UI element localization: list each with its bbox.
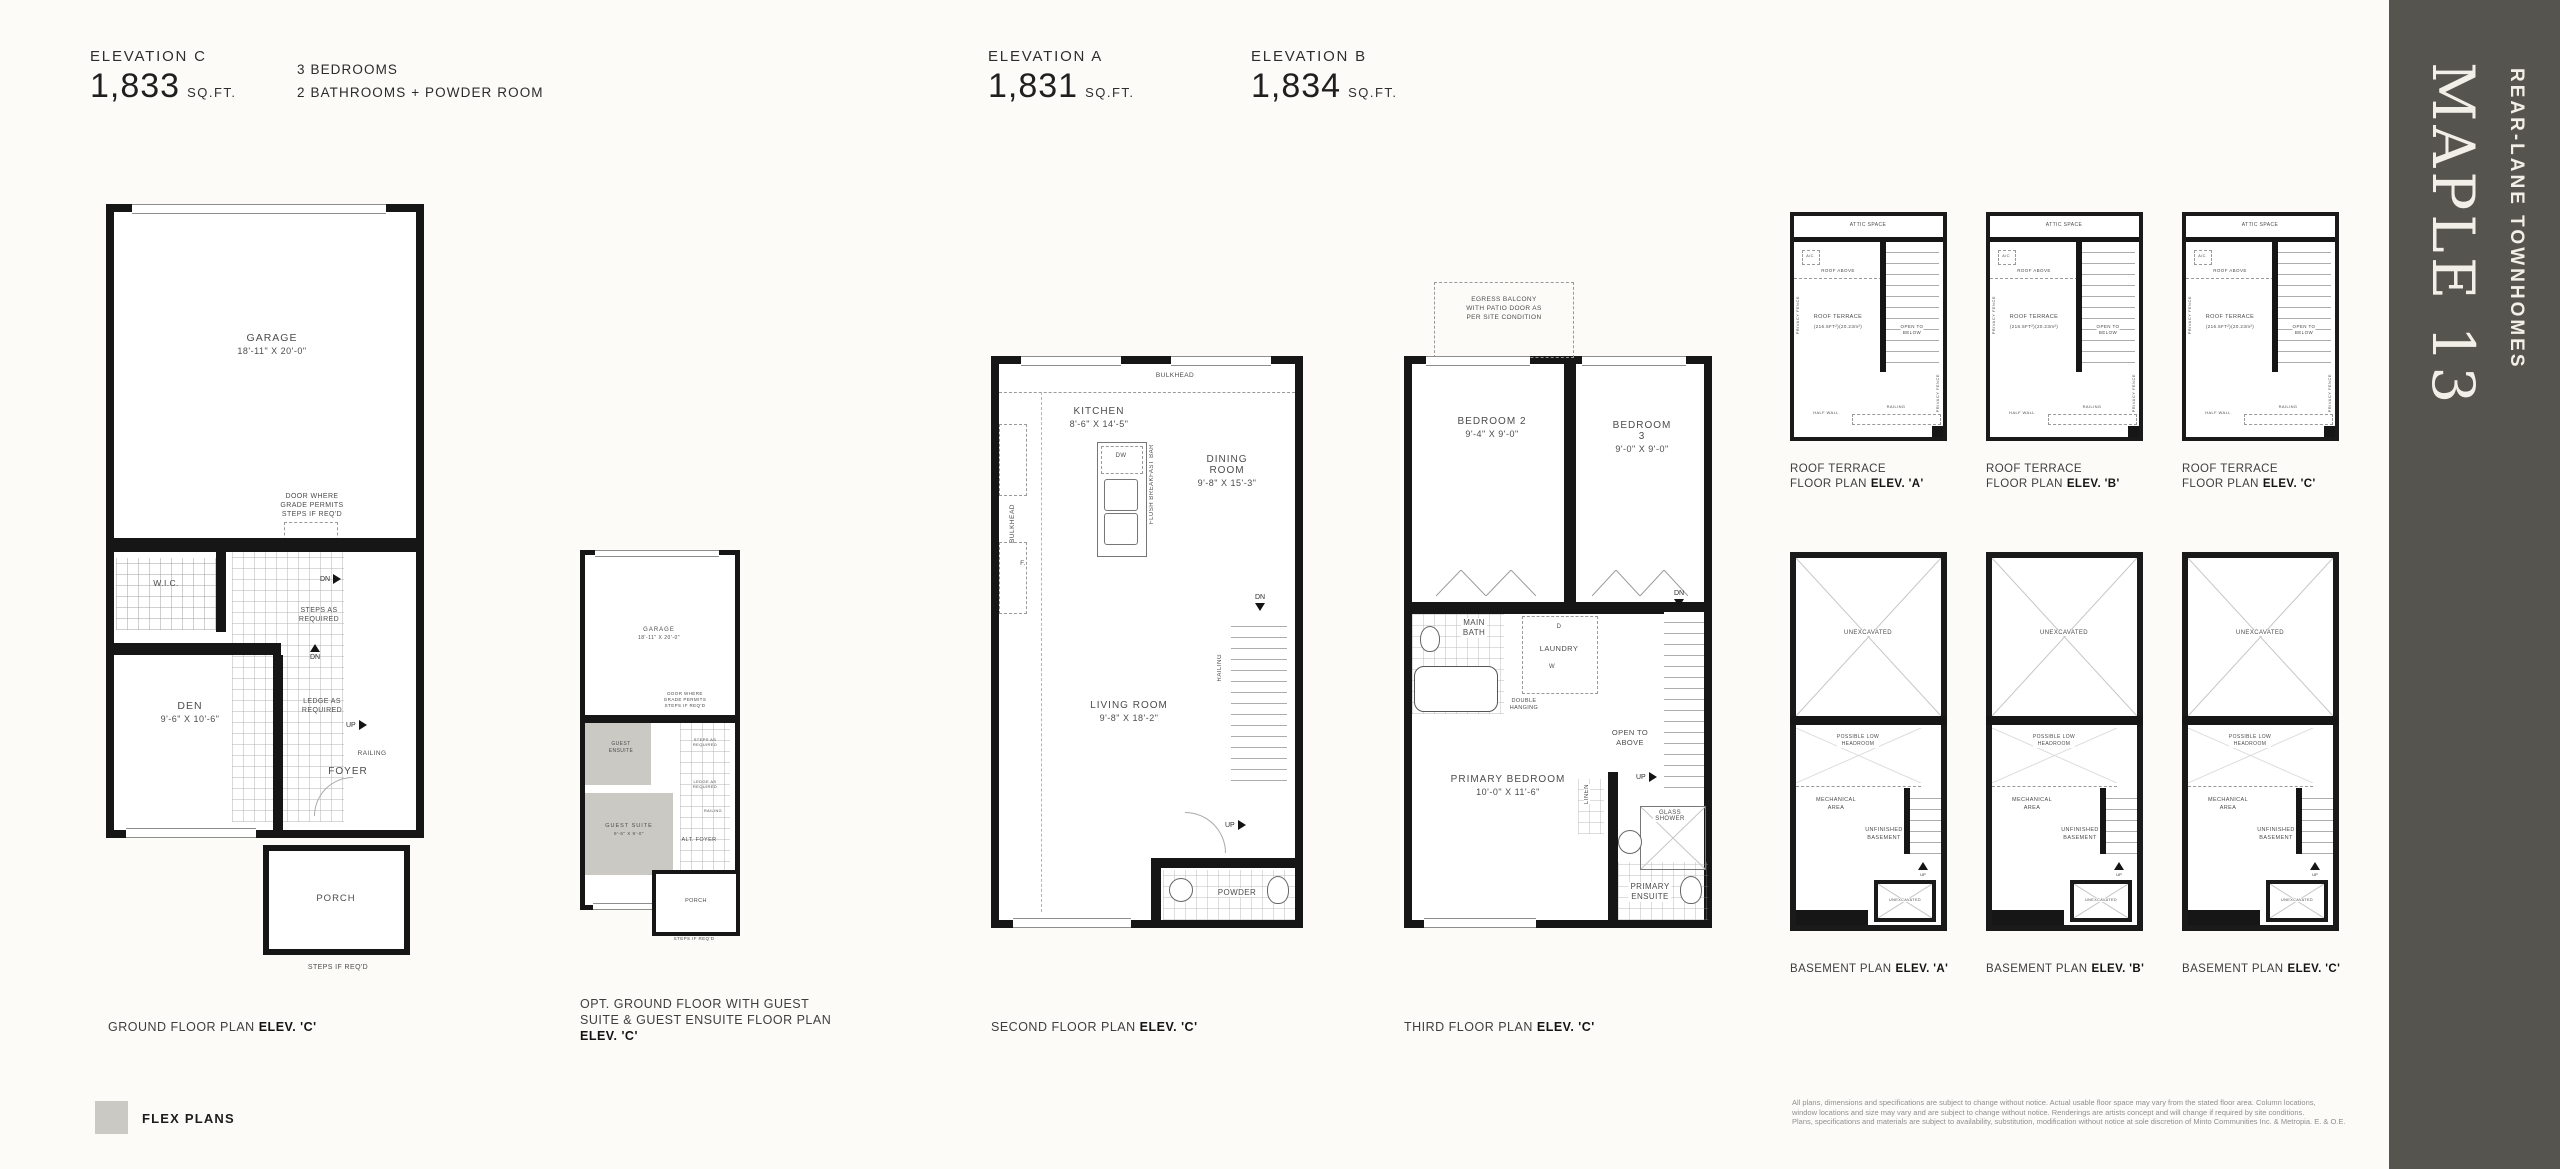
unexcavated-label: UNEXCAVATED (1842, 630, 1894, 636)
guest-suite-label: GUEST SUITE 9'-6" X 9'-0" (605, 823, 653, 836)
roof-terrace-plan-a: ATTIC SPACE A/C ROOF ABOVE ROOF TERRACE … (1790, 212, 1947, 441)
unfinished-label: UNFINISHED BASEMENT (1865, 826, 1903, 842)
privacy-fence-label: PRIVACY FENCE (1991, 296, 1996, 334)
dn-label: DN (1255, 594, 1265, 601)
toilet (1267, 876, 1289, 904)
open-below-label: OPEN TO BELOW (1901, 324, 1924, 336)
sink (1104, 479, 1138, 511)
up-label: UP (1920, 872, 1926, 877)
feature-list: 3 BEDROOMS 2 BATHROOMS + POWDER ROOM (297, 58, 544, 104)
wall (1932, 426, 1943, 437)
room-name: KITCHEN (1070, 406, 1129, 417)
sink (1169, 878, 1193, 902)
caption-text: ROOF TERRACE (1790, 462, 1924, 477)
wall (2182, 716, 2339, 725)
garage-room-label: GARAGE 18'-11" X 20'-0" (638, 627, 680, 641)
stairs (2082, 242, 2135, 372)
elevation-b-area: 1,834SQ.FT. (1251, 67, 1398, 106)
fridge-label: F. (1020, 560, 1026, 567)
egress-note: EGRESS BALCONY WITH PATIO DOOR AS PER SI… (1439, 295, 1569, 322)
porch: PORCH (263, 845, 410, 955)
bedroom3-label: BEDROOM 3 9'-0" X 9'-0" (1611, 420, 1673, 454)
den-room-label: DEN 9'-6" X 10'-6" (161, 700, 220, 724)
open-to-above-label: OPEN TO ABOVE (1612, 728, 1648, 748)
cooktop (999, 424, 1027, 496)
railing (1852, 414, 1941, 425)
opt-plan-caption: OPT. GROUND FLOOR WITH GUEST SUITE & GUE… (580, 996, 831, 1044)
unexcavated-box: UNEXCAVATED (2266, 880, 2328, 922)
unfinished-label: UNFINISHED BASEMENT (2061, 826, 2099, 842)
half-wall-label: HALF WALL (2009, 410, 2035, 415)
railing-label: RAILING (2279, 404, 2298, 409)
attic-label: ATTIC SPACE (1850, 222, 1886, 228)
powder-label: POWDER (1216, 888, 1258, 897)
line (2188, 786, 2313, 787)
railing (2244, 414, 2333, 425)
unexcavated-label: UNEXCAVATED (1889, 898, 1921, 902)
room-dim: 9'-8" X 15'-3" (1193, 478, 1261, 488)
ground-floor-plan: GARAGE 18'-11" X 20'-0" DOOR WHERE GRADE… (106, 204, 424, 838)
porch-label: PORCH (316, 893, 355, 904)
door-swing-arc (1185, 812, 1226, 853)
caption-elev: ELEV. 'C' (259, 1020, 317, 1034)
unexcavated-label: UNEXCAVATED (2281, 898, 2313, 902)
mechanical-label: MECHANICAL AREA (2208, 796, 2248, 812)
bulkhead-label: BULKHEAD (1156, 372, 1194, 379)
caption-text: SECOND FLOOR PLAN (991, 1020, 1136, 1034)
attic-label: ATTIC SPACE (2046, 222, 2082, 228)
up-direction: UP (2310, 862, 2320, 877)
opt-ground-floor-plan: GARAGE 18'-11" X 20'-0" DOOR WHERE GRADE… (580, 550, 740, 910)
caption-elev: ELEV. 'A' (1871, 478, 1924, 490)
dn-direction: DN (1674, 590, 1684, 607)
roof-above-label: ROOF ABOVE (2017, 268, 2051, 273)
basement-caption-a: BASEMENT PLANELEV. 'A' (1790, 962, 1948, 977)
privacy-fence-label: PRIVACY FENCE (2131, 374, 2136, 412)
bathtub (1414, 666, 1498, 712)
ac-label: A/C (2198, 253, 2206, 258)
second-plan-caption: SECOND FLOOR PLANELEV. 'C' (991, 1020, 1198, 1034)
linen-closet (1578, 779, 1604, 834)
dryer-label: D (1557, 624, 1562, 630)
caption-text: ROOF TERRACE (1986, 462, 2120, 477)
line (1796, 786, 1921, 787)
room-dim: 18'-11" X 20'-0" (638, 635, 680, 641)
elevation-c-area: 1,833SQ.FT. (90, 67, 237, 106)
brochure-sheet: ELEVATION C 1,833SQ.FT. 3 BEDROOMS 2 BAT… (0, 0, 2560, 1169)
up-label: UP (2116, 872, 2122, 877)
up-label: UP (1636, 774, 1646, 781)
roof-line (1990, 278, 2078, 279)
line (1992, 786, 2117, 787)
disclaimer: All plans, dimensions and specifications… (1792, 1098, 2412, 1127)
room-name: BEDROOM 2 (1457, 416, 1526, 427)
up-label: UP (1225, 822, 1235, 829)
privacy-fence-label: PRIVACY FENCE (2187, 296, 2192, 334)
dn-direction: DN (1255, 594, 1265, 611)
bedroom2-label: BEDROOM 2 9'-4" X 9'-0" (1457, 416, 1526, 439)
roof-caption-a: ROOF TERRACEFLOOR PLANELEV. 'A' (1790, 462, 1924, 492)
toilet (1680, 876, 1702, 904)
room-dim: 8'-6" X 14'-5" (1070, 419, 1129, 429)
caption-text: BASEMENT PLAN (1986, 963, 2088, 975)
basement-plan-c: UNEXCAVATED POSSIBLE LOW HEADROOM MECHAN… (2182, 552, 2339, 931)
ground-plan-caption: GROUND FLOOR PLANELEV. 'C' (108, 1020, 317, 1034)
wall (1608, 772, 1618, 920)
half-wall-label: HALF WALL (1813, 410, 1839, 415)
down-arrow-icon (1674, 599, 1684, 607)
third-plan-caption: THIRD FLOOR PLANELEV. 'C' (1404, 1020, 1595, 1034)
stairs (1910, 788, 1941, 860)
room-dim: 9'-0" X 9'-0" (1611, 444, 1673, 454)
glass-shower-label: GLASS SHOWER (1653, 810, 1687, 822)
wall (1151, 858, 1161, 920)
washer-label: W (1549, 664, 1555, 670)
ledge-note: LEDGE AS REQUIRED (302, 697, 342, 715)
room-dim: 9'-4" X 9'-0" (1457, 429, 1526, 439)
unexcavated-label: UNEXCAVATED (2038, 630, 2090, 636)
window (1582, 356, 1686, 366)
low-headroom-label: POSSIBLE LOW HEADROOM (1837, 734, 1879, 748)
disclaimer-line: window locations and size may vary and a… (1792, 1108, 2412, 1118)
up-direction: UP (2114, 862, 2124, 877)
caption-text: BASEMENT PLAN (1790, 963, 1892, 975)
wall (273, 655, 283, 830)
wall (1790, 716, 1947, 725)
living-room-label: LIVING ROOM 9'-8" X 18'-2" (1090, 700, 1168, 723)
elevation-a-area: 1,831SQ.FT. (988, 67, 1135, 106)
room-name: BEDROOM 3 (1611, 420, 1673, 442)
elevation-b-header: ELEVATION B 1,834SQ.FT. (1251, 48, 1398, 106)
stairs (2302, 788, 2333, 860)
toilet (1420, 626, 1440, 652)
stairs (1664, 612, 1704, 792)
feature-bathrooms: 2 BATHROOMS + POWDER ROOM (297, 81, 544, 104)
wall (1986, 716, 2143, 725)
room-name: DEN (161, 700, 220, 712)
stairs (1231, 616, 1287, 784)
flex-plan-swatch (95, 1101, 128, 1134)
unexcavated-label: UNEXCAVATED (2234, 630, 2286, 636)
bulkhead-line (1041, 392, 1042, 912)
roof-caption-b: ROOF TERRACEFLOOR PLANELEV. 'B' (1986, 462, 2120, 492)
mechanical-label: MECHANICAL AREA (2012, 796, 2052, 812)
wall (1796, 910, 1868, 925)
steps-req-note: STEPS IF REQ'D (308, 964, 368, 971)
dishwasher (1101, 446, 1143, 474)
half-wall-label: HALF WALL (2205, 410, 2231, 415)
steps-note: STEPS AS REQUIRED (693, 737, 717, 747)
caption-text: THIRD FLOOR PLAN (1404, 1020, 1533, 1034)
terrace-area: (216.5FT²)(20.23m²) (1814, 324, 1862, 329)
linen-label: LINEN (1584, 784, 1590, 804)
disclaimer-line: All plans, dimensions and specifications… (1792, 1098, 2412, 1108)
foyer-label: FOYER (328, 766, 367, 777)
basement-caption-c: BASEMENT PLANELEV. 'C' (2182, 962, 2340, 977)
caption-text: GROUND FLOOR PLAN (108, 1020, 255, 1034)
caption-elev: ELEV. 'C' (2263, 478, 2316, 490)
room-dim: 9'-6" X 9'-0" (605, 831, 653, 836)
up-direction: UP (1225, 820, 1246, 830)
area-unit: SQ.FT. (1348, 85, 1397, 100)
dn-label: DN (1674, 590, 1684, 597)
terrace-area: (216.5FT²)(20.23m²) (2206, 324, 2254, 329)
unexcavated-label: UNEXCAVATED (2085, 898, 2117, 902)
roof-terrace-plan-c: ATTIC SPACE A/C ROOF ABOVE ROOF TERRACE … (2182, 212, 2339, 441)
roof-terrace-plan-b: ATTIC SPACE A/C ROOF ABOVE ROOF TERRACE … (1986, 212, 2143, 441)
ledge-note: LEDGE AS REQUIRED (693, 779, 717, 789)
right-arrow-icon (1238, 820, 1246, 830)
basement-plan-a: UNEXCAVATED POSSIBLE LOW HEADROOM MECHAN… (1790, 552, 1947, 931)
breakfast-bar-label: FLUSH BREAKFAST BAR (1149, 444, 1155, 524)
dining-room-label: DINING ROOM 9'-8" X 15'-3" (1193, 454, 1261, 488)
bulkhead-label: BULKHEAD (1009, 504, 1016, 543)
guest-ensuite-label: GUEST ENSUITE (609, 741, 633, 754)
basement-caption-b: BASEMENT PLANELEV. 'B' (1986, 962, 2144, 977)
open-below-label: OPEN TO BELOW (2097, 324, 2120, 336)
caption-text: FLOOR PLAN (1986, 478, 2063, 490)
mechanical-label: MECHANICAL AREA (1816, 796, 1856, 812)
primary-ensuite-label: PRIMARY ENSUITE (1628, 882, 1671, 902)
ac-label: A/C (1806, 253, 1814, 258)
fridge (999, 542, 1027, 614)
alt-foyer-label: ALT. FOYER (681, 837, 716, 843)
up-label: UP (2312, 872, 2318, 877)
feature-bedrooms: 3 BEDROOMS (297, 58, 544, 81)
ac-label: A/C (2002, 253, 2010, 258)
terrace-area: (216.5FT²)(20.23m²) (2010, 324, 2058, 329)
right-arrow-icon (1649, 772, 1657, 782)
caption-elev: ELEV. 'B' (2092, 963, 2145, 975)
elevation-b-label: ELEVATION B (1251, 48, 1398, 65)
right-arrow-icon (359, 720, 367, 730)
wall (1992, 910, 2064, 925)
side-banner: MAPLE 13 REAR-LANE TOWNHOMES (2389, 0, 2560, 1169)
wall (1151, 858, 1303, 868)
disclaimer-line: Plans, specifications and materials are … (1792, 1117, 2412, 1127)
attic-label: ATTIC SPACE (2242, 222, 2278, 228)
area-unit: SQ.FT. (1085, 85, 1134, 100)
steps-note: STEPS AS REQUIRED (299, 606, 339, 624)
terrace-label: ROOF TERRACE (2206, 314, 2254, 320)
garage-room-label: GARAGE 18'-11" X 20'-0" (237, 332, 306, 356)
railing (2048, 414, 2137, 425)
area-unit: SQ.FT. (187, 85, 236, 100)
banner-title: MAPLE 13 (2419, 62, 2487, 407)
railing-label: RAILING (1217, 654, 1223, 682)
caption-elev: ELEV. 'C' (1140, 1020, 1198, 1034)
caption-text: OPT. GROUND FLOOR WITH GUEST (580, 996, 831, 1012)
up-arrow-icon (2114, 862, 2124, 870)
unexcavated-box: UNEXCAVATED (2070, 880, 2132, 922)
stairs (1886, 242, 1939, 372)
wall (106, 538, 424, 552)
window (1171, 356, 1271, 366)
elevation-c-label: ELEVATION C (90, 48, 237, 65)
bulkhead-line (999, 392, 1295, 393)
area-value: 1,831 (988, 67, 1078, 105)
kitchen-island: DW (1097, 442, 1147, 557)
opt-porch: PORCH (652, 870, 740, 936)
wall (216, 552, 226, 632)
up-arrow-icon (2310, 862, 2320, 870)
privacy-fence-label: PRIVACY FENCE (1795, 296, 1800, 334)
elevation-c-header: ELEVATION C 1,833SQ.FT. (90, 48, 237, 106)
room-name: GARAGE (638, 627, 680, 633)
sink (1618, 830, 1642, 854)
wall (2188, 910, 2260, 925)
guest-ensuite-flex-room (585, 723, 651, 785)
unexcavated-box: UNEXCAVATED (1874, 880, 1936, 922)
wall (1564, 364, 1576, 602)
dn-label: DN (310, 654, 320, 661)
room-dim: 9'-6" X 10'-6" (161, 714, 220, 724)
porch-label: PORCH (685, 898, 707, 904)
dn-label: DN (320, 576, 330, 583)
low-headroom-label: POSSIBLE LOW HEADROOM (2229, 734, 2271, 748)
sink (1104, 513, 1138, 545)
elevation-a-label: ELEVATION A (988, 48, 1135, 65)
caption-elev: ELEV. 'C' (580, 1028, 831, 1044)
third-floor-plan: EGRESS BALCONY WITH PATIO DOOR AS PER SI… (1404, 356, 1712, 928)
railing-label: RAILING (1887, 404, 1906, 409)
area-value: 1,834 (1251, 67, 1341, 105)
garage-door (132, 204, 386, 214)
laundry-label: LAUNDRY (1540, 644, 1579, 653)
unfinished-label: UNFINISHED BASEMENT (2257, 826, 2295, 842)
second-floor-plan: BULKHEAD KITCHEN 8'-6" X 14'-5" DW FLUSH… (991, 356, 1303, 928)
up-direction: UP (1636, 772, 1657, 782)
dn-direction: DN (320, 574, 341, 584)
primary-bedroom-label: PRIMARY BEDROOM 10'-0" X 11'-6" (1451, 774, 1566, 797)
caption-text: ROOF TERRACE (2182, 462, 2316, 477)
wall (106, 643, 281, 655)
wic-closet (116, 558, 216, 630)
window (593, 903, 653, 910)
main-bath-label: MAIN BATH (1461, 618, 1487, 638)
window (1021, 356, 1121, 366)
dn-direction: DN (310, 644, 320, 661)
up-arrow-icon (1918, 862, 1928, 870)
caption-text: FLOOR PLAN (2182, 478, 2259, 490)
banner-subtitle: REAR-LANE TOWNHOMES (2505, 68, 2527, 370)
wall (2324, 426, 2335, 437)
caption-text: SUITE & GUEST ENSUITE FLOOR PLAN (580, 1012, 831, 1028)
area-value: 1,833 (90, 67, 180, 105)
room-dim: 9'-8" X 18'-2" (1090, 713, 1168, 723)
caption-elev: ELEV. 'C' (2288, 963, 2341, 975)
room-name: GARAGE (237, 332, 306, 344)
terrace-label: ROOF TERRACE (1814, 314, 1862, 320)
egress-balcony: EGRESS BALCONY WITH PATIO DOOR AS PER SI… (1434, 282, 1574, 358)
privacy-fence-label: PRIVACY FENCE (1935, 374, 1940, 412)
window (1013, 918, 1131, 928)
railing-label: RAILING (2083, 404, 2102, 409)
kitchen-room-label: KITCHEN 8'-6" X 14'-5" (1070, 406, 1129, 429)
wall (580, 715, 740, 723)
up-direction: UP (346, 720, 367, 730)
up-direction: UP (1918, 862, 1928, 877)
caption-elev: ELEV. 'A' (1896, 963, 1949, 975)
roof-above-label: ROOF ABOVE (1821, 268, 1855, 273)
railing-label: RAILING (704, 809, 722, 813)
door-note: DOOR WHERE GRADE PERMITS STEPS IF REQ'D (280, 492, 343, 519)
stairs (232, 552, 344, 822)
room-dim: 10'-0" X 11'-6" (1451, 787, 1566, 797)
door-note: DOOR WHERE GRADE PERMITS STEPS IF REQ'D (664, 691, 706, 709)
low-headroom-label: POSSIBLE LOW HEADROOM (2033, 734, 2075, 748)
up-arrow-icon (310, 644, 320, 652)
steps-req-note: STEPS IF REQ'D (674, 936, 715, 941)
dw-label: DW (1116, 453, 1127, 459)
down-arrow-icon (1255, 603, 1265, 611)
terrace-label: ROOF TERRACE (2010, 314, 2058, 320)
room-dim: 18'-11" X 20'-0" (237, 346, 306, 356)
roof-line (1794, 278, 1882, 279)
flex-plans-label: FLEX PLANS (142, 1111, 235, 1126)
stairs (2106, 788, 2137, 860)
up-label: UP (346, 722, 356, 729)
double-hanging-label: DOUBLE HANGING (1510, 698, 1538, 712)
open-below-label: OPEN TO BELOW (2293, 324, 2316, 336)
roof-above-label: ROOF ABOVE (2213, 268, 2247, 273)
room-name: GUEST SUITE (605, 823, 653, 829)
window (1426, 356, 1530, 366)
privacy-fence-label: PRIVACY FENCE (2327, 374, 2332, 412)
caption-text: BASEMENT PLAN (2182, 963, 2284, 975)
window (126, 828, 256, 838)
room-name: DINING ROOM (1193, 454, 1261, 476)
caption-elev: ELEV. 'C' (1537, 1020, 1595, 1034)
railing-label: RAILING (358, 750, 387, 757)
right-arrow-icon (333, 574, 341, 584)
wic-label: W.I.C. (153, 578, 179, 588)
elevation-a-header: ELEVATION A 1,831SQ.FT. (988, 48, 1135, 106)
caption-text: FLOOR PLAN (1790, 478, 1867, 490)
roof-caption-c: ROOF TERRACEFLOOR PLANELEV. 'C' (2182, 462, 2316, 492)
garage-door (595, 550, 719, 557)
room-name: PRIMARY BEDROOM (1451, 774, 1566, 785)
caption-elev: ELEV. 'B' (2067, 478, 2120, 490)
wall (2128, 426, 2139, 437)
stairs (2278, 242, 2331, 372)
roof-line (2186, 278, 2274, 279)
room-name: LIVING ROOM (1090, 700, 1168, 711)
closet-doors (1436, 570, 1536, 596)
window (1424, 918, 1536, 928)
basement-plan-b: UNEXCAVATED POSSIBLE LOW HEADROOM MECHAN… (1986, 552, 2143, 931)
